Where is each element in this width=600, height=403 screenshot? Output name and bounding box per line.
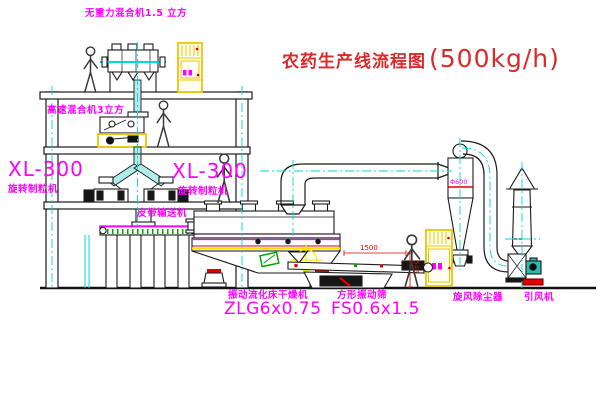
person-floor2 [157, 101, 170, 146]
label-granulator-mid-model: XL-300 [172, 161, 248, 181]
label-fan: 引风机 [524, 293, 554, 303]
dim-sieve-length: 1500 [360, 245, 378, 252]
control-cabinet-top [178, 43, 202, 92]
label-granulator-mid-name: 旋转制粒机 [178, 187, 228, 197]
induced-draft-fan [506, 168, 543, 285]
label-gravity-mixer: 无重力混合机1.5 立方 [85, 9, 187, 19]
label-belt-conveyor: 皮带输送机 [137, 209, 187, 219]
label-granulator-left-model: XL-300 [8, 159, 84, 179]
label-cyclone-size: Φ600 [450, 179, 468, 186]
label-granulator-left-name: 旋转制粒机 [8, 185, 58, 195]
dim-sieve-height: 545 [412, 260, 419, 273]
belt-conveyor [85, 226, 196, 288]
high-speed-mixer [98, 112, 148, 154]
label-high-speed-mixer: 高速混合机3立方 [47, 106, 124, 116]
exhaust-duct [281, 162, 449, 214]
label-sieve-model: FS0.6x1.5 [331, 301, 420, 318]
person-roof [84, 47, 97, 92]
gravity-free-mixer [100, 44, 166, 112]
title-capacity: (500kg/h) [429, 44, 560, 73]
title-text: 农药生产线流程图 [282, 47, 426, 72]
control-cabinet-right [426, 230, 452, 286]
diagram-title: 农药生产线流程图 (500kg/h) [282, 44, 560, 73]
cad-flow-diagram: 农药生产线流程图 (500kg/h) 无重力混合机1.5 立方 高速混合机3立方… [0, 0, 600, 403]
label-cyclone: 旋风除尘器 [453, 293, 503, 303]
label-dryer-model: ZLG6x0.75 [224, 301, 322, 318]
